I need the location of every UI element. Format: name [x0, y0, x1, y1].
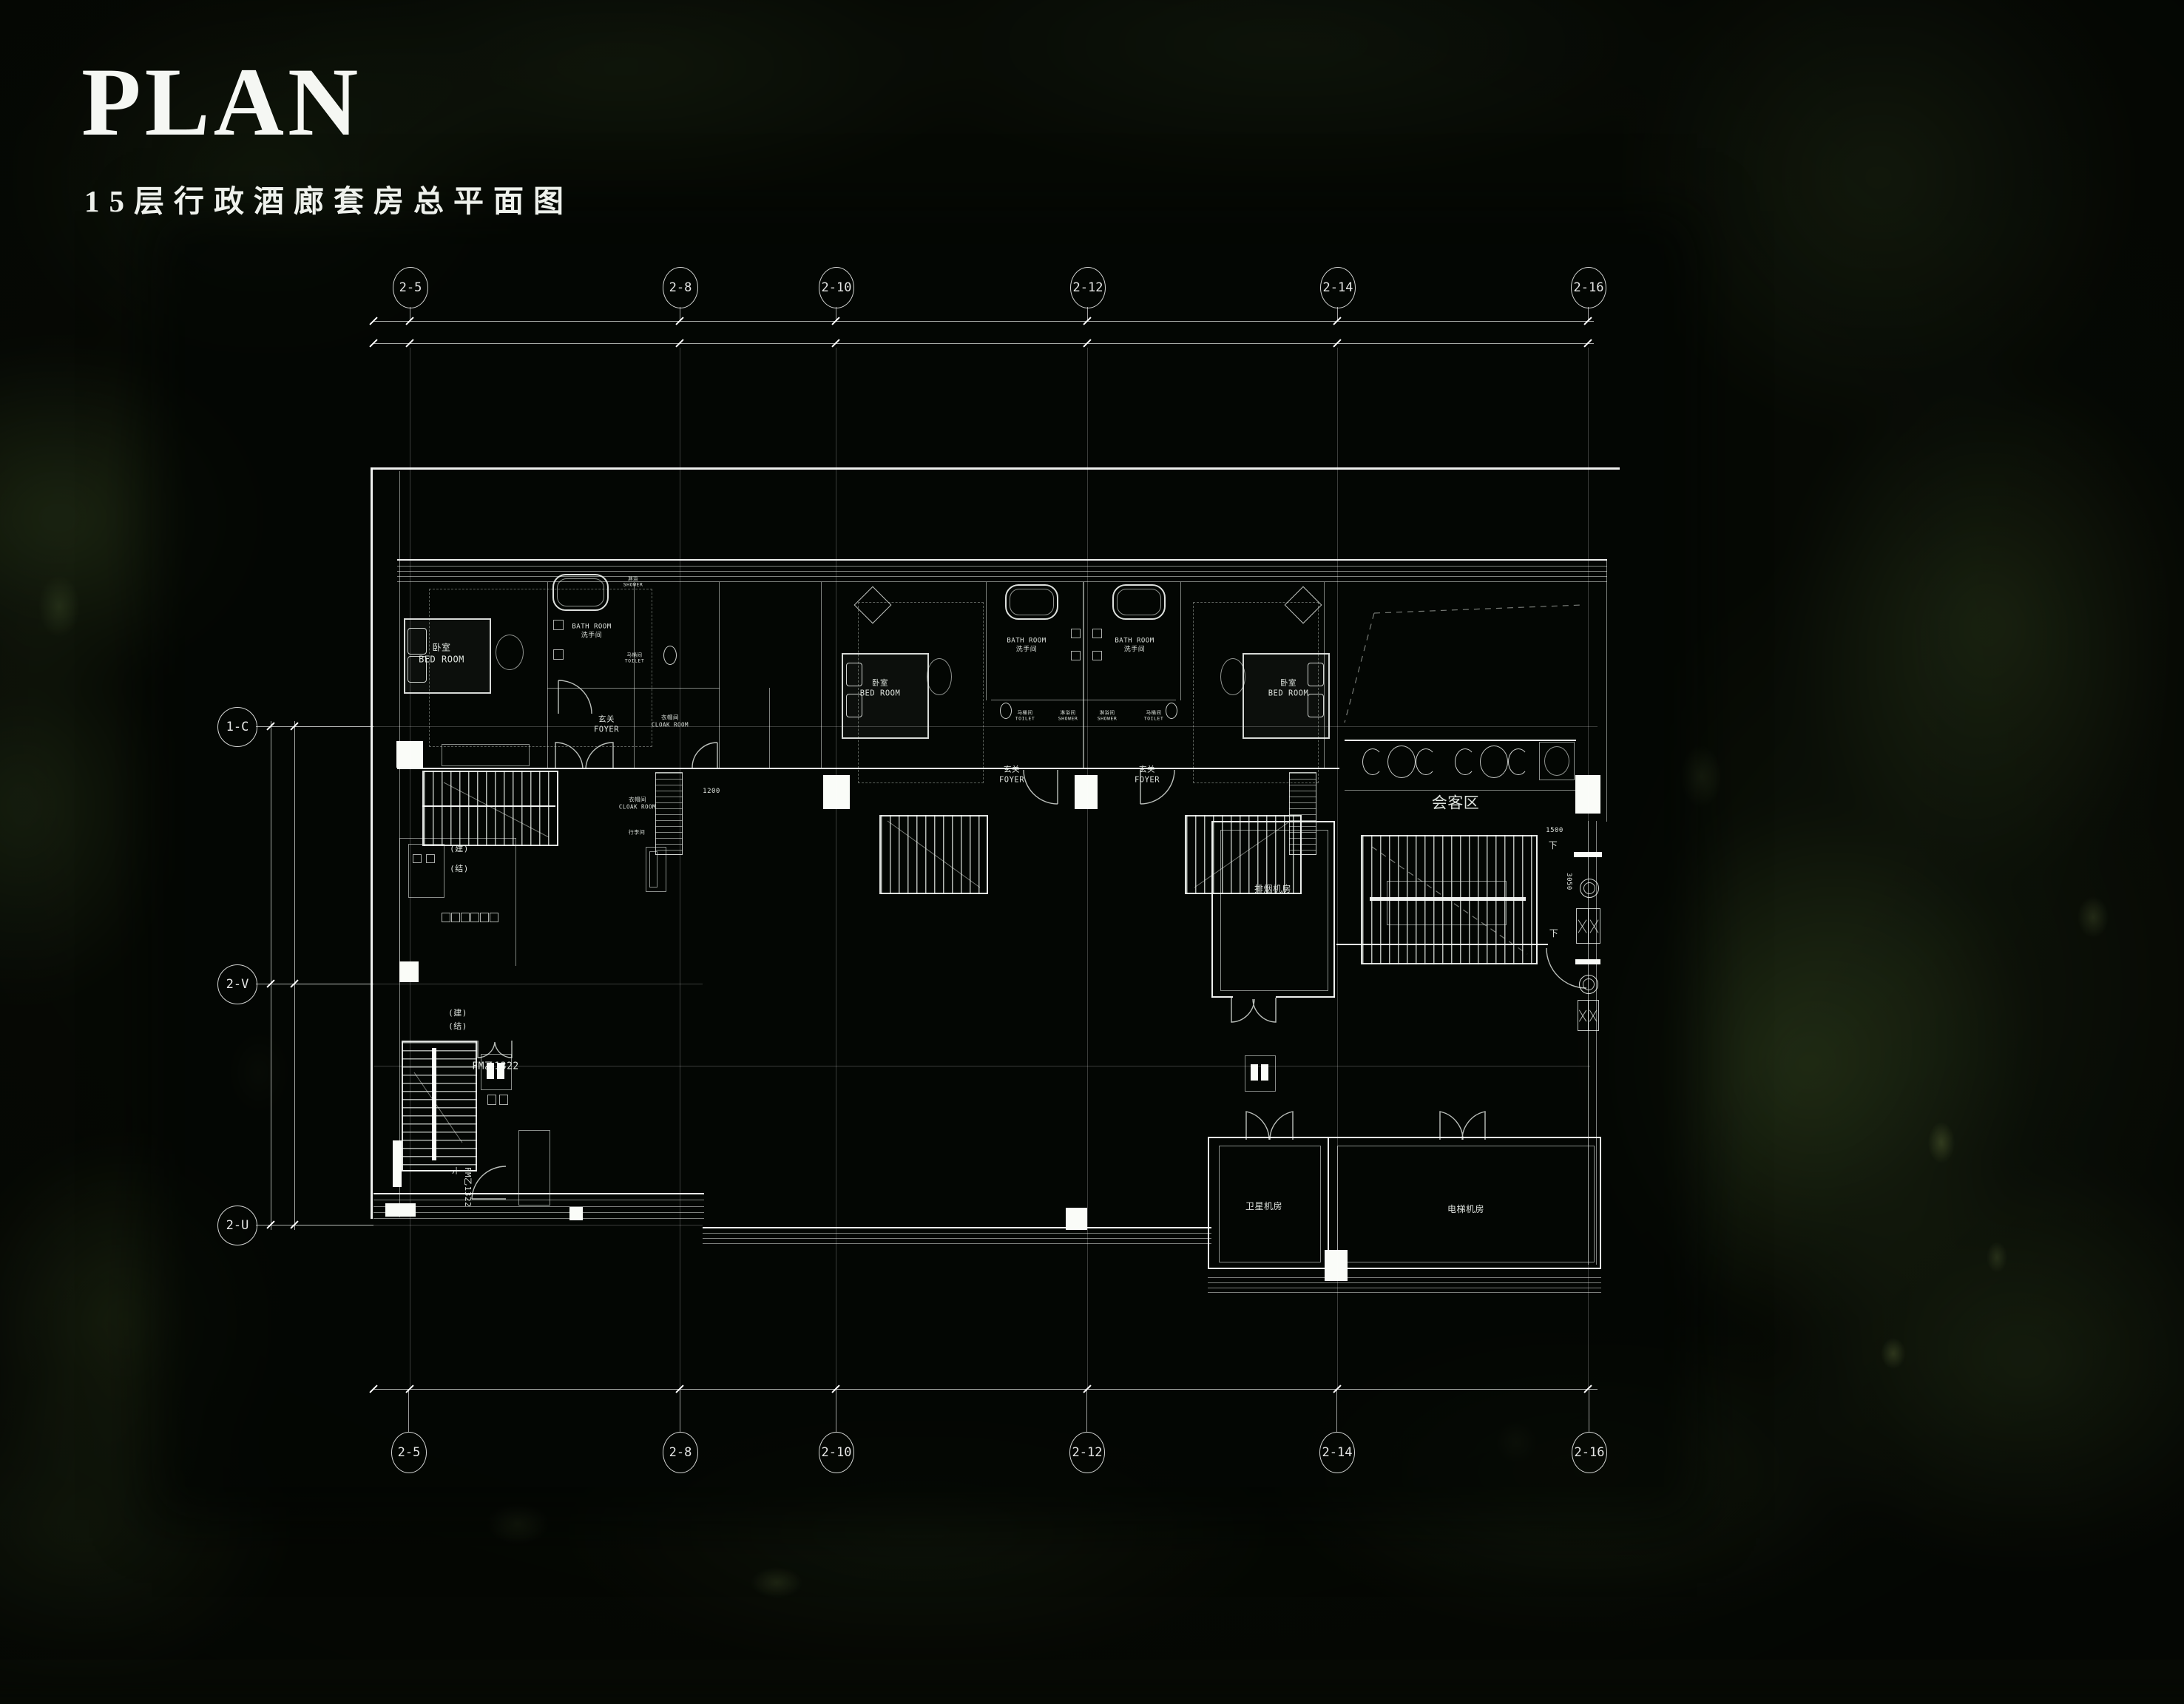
- stair: [402, 1041, 477, 1171]
- grid-axis-line: [294, 1225, 703, 1225]
- grid-axis-line: [410, 348, 410, 1389]
- grid-axis-line: [680, 348, 680, 1389]
- floor-plan-drawing: 2-52-82-102-122-142-162-52-82-102-122-14…: [0, 0, 2184, 1660]
- bath-wall: [991, 700, 1176, 700]
- bathtub: [1005, 584, 1058, 620]
- cad-label: 马桶间 TOILET: [1144, 710, 1163, 723]
- column: [1075, 775, 1098, 809]
- column: [823, 775, 850, 809]
- column: [1325, 1250, 1348, 1281]
- stair-rail: [432, 1048, 436, 1160]
- stair-landing: [1387, 881, 1507, 925]
- boundary-top: [371, 467, 1620, 470]
- service-ladder: [655, 772, 683, 855]
- cad-label: 1500: [1546, 827, 1563, 836]
- cad-label: 电梯机房: [1447, 1204, 1484, 1216]
- column-symbol: [1245, 1055, 1276, 1092]
- hall-room-wall: [515, 838, 516, 966]
- grid-axis-line: [1337, 348, 1338, 1389]
- grid-axis-line: [294, 984, 703, 984]
- closet-cell: [470, 913, 479, 922]
- fixture: [499, 1095, 508, 1105]
- cad-label: (结): [448, 1021, 467, 1032]
- stair-landing-line: [422, 805, 555, 807]
- grid-bubble: 2-U: [217, 1206, 257, 1245]
- bottom-line: [1208, 1282, 1601, 1283]
- sink: [1092, 629, 1102, 638]
- cad-label: 玄关 FOYER: [999, 765, 1024, 785]
- sink: [1092, 651, 1102, 660]
- grid-bubble: 2-10: [819, 1432, 854, 1473]
- cad-label: 卧室 BED ROOM: [860, 678, 901, 698]
- cad-label: FM乙1322: [462, 1167, 473, 1207]
- machine-rooms-top: [1208, 1137, 1601, 1138]
- stair: [422, 771, 558, 846]
- column-fill: [1251, 1064, 1258, 1081]
- bathtub: [1112, 584, 1166, 620]
- grid-axis-line: [1588, 348, 1589, 1389]
- closet: [408, 844, 444, 898]
- closet-cell: [426, 854, 435, 863]
- stair: [879, 815, 988, 894]
- lounge-chair: [1455, 748, 1475, 775]
- machine-rooms-right: [1600, 1137, 1601, 1269]
- band-right-edge: [1606, 560, 1607, 822]
- shaft-x: [1578, 1000, 1589, 1031]
- cad-label: 衣帽间 CLOAK ROOM: [652, 714, 689, 728]
- closet-cell: [461, 913, 470, 922]
- bottom-line: [1208, 1288, 1601, 1288]
- cad-label: 衣帽间 CLOAK ROOM: [619, 796, 656, 811]
- cad-label: 卫星机房: [1245, 1201, 1282, 1213]
- boundary-left: [371, 467, 373, 1219]
- dim-line: [373, 321, 1594, 322]
- lounge-table: [1387, 745, 1416, 778]
- toilet: [1000, 703, 1012, 719]
- exterior-wall: [397, 559, 1607, 561]
- bottom-line: [703, 1243, 1211, 1244]
- window-line: [397, 566, 1607, 567]
- bottom-line: [1208, 1292, 1601, 1293]
- cad-label: 玄关 FOYER: [594, 714, 619, 734]
- grid-bubble: 2-8: [663, 1432, 698, 1473]
- cad-label: 淋浴间 SHOWER: [1098, 710, 1117, 723]
- cad-label: 3050: [1563, 873, 1572, 890]
- bottom-line: [703, 1233, 1211, 1234]
- grid-bubble: 2-14: [1319, 1432, 1355, 1473]
- smoke-room-wall: [1333, 821, 1335, 998]
- grid-stem: [836, 1390, 836, 1432]
- bottom-edge-mid: [703, 1227, 1211, 1228]
- service-ladder: [1289, 772, 1316, 855]
- grid-stem: [1589, 1390, 1589, 1432]
- bottom-line: [703, 1238, 1211, 1239]
- sink: [1071, 651, 1081, 660]
- lounge-wall: [1345, 740, 1576, 741]
- sink: [1071, 629, 1081, 638]
- machine-rooms-left: [1208, 1137, 1209, 1269]
- cad-label: 下: [447, 1166, 458, 1175]
- grid-bubble: 2-16: [1571, 267, 1606, 308]
- grid-bubble: 2-16: [1572, 1432, 1607, 1473]
- cad-label: BATH ROOM 洗手间: [572, 623, 611, 640]
- smoke-room-wall: [1211, 996, 1233, 998]
- column: [1066, 1208, 1087, 1230]
- toilet: [663, 646, 677, 665]
- grid-bubble: 2-12: [1069, 1432, 1105, 1473]
- column-fill: [1261, 1064, 1268, 1081]
- cad-label: (建): [450, 844, 469, 854]
- window-line: [397, 571, 1607, 572]
- cad-label: BATH ROOM 洗手间: [1115, 637, 1154, 654]
- lounge-chair: [1508, 748, 1529, 775]
- closet-cell: [413, 854, 422, 863]
- dim-line: [373, 1389, 1598, 1390]
- closet-cell: [442, 913, 450, 922]
- cad-label: 淋浴间 SHOWER: [1058, 710, 1078, 723]
- bottom-line: [1208, 1277, 1601, 1278]
- closet-cell: [490, 913, 498, 922]
- elevator-symbol: [1579, 975, 1598, 994]
- elevator-symbol: [1580, 879, 1599, 898]
- smoke-room-wall: [1276, 996, 1335, 998]
- wall-block: [399, 961, 419, 982]
- slide: PLAN 15层行政酒廊套房总平面图 2-52-82-102-122-142-1…: [0, 0, 2184, 1660]
- cad-label: 下: [1549, 928, 1559, 940]
- grid-stem: [680, 1390, 680, 1432]
- door-panel: [518, 1130, 550, 1206]
- lounge-chair: [1416, 748, 1436, 775]
- cad-label: 马桶间 TOILET: [1015, 710, 1035, 723]
- grid-bubble: 2-12: [1070, 267, 1106, 308]
- shaft-x: [1576, 908, 1589, 944]
- wall-block: [385, 1203, 416, 1217]
- cad-label: 下: [1549, 840, 1558, 852]
- cad-label: 淋浴 SHOWER: [623, 576, 643, 589]
- cad-label: 卧室 BED ROOM: [1268, 678, 1309, 698]
- partition: [821, 582, 822, 768]
- shaft-x: [1588, 908, 1600, 944]
- grid-axis-line: [294, 726, 1598, 727]
- grid-bubble: 2-5: [391, 1432, 427, 1473]
- machine-rooms-bottom: [1208, 1268, 1601, 1269]
- grid-bubble: 1-C: [217, 707, 257, 747]
- partition: [769, 688, 770, 768]
- grid-stem: [408, 1390, 409, 1432]
- fixture: [487, 1095, 496, 1105]
- lounge-table: [1480, 745, 1508, 778]
- bottom-line: [373, 1212, 704, 1213]
- stair: [1185, 815, 1302, 894]
- hall-room-wall: [399, 838, 400, 966]
- grid-axis-line: [1087, 348, 1088, 1389]
- shaft-x: [1588, 1000, 1599, 1031]
- dim-line: [271, 721, 271, 1230]
- cad-label: 排烟机房: [1254, 884, 1291, 896]
- cad-label: 会客区: [1432, 793, 1480, 813]
- cad-label: (结): [450, 864, 469, 874]
- cad-label: 卧室 BED ROOM: [419, 642, 464, 665]
- partition: [986, 582, 987, 700]
- grid-axis-line: [836, 348, 836, 1389]
- bottom-line: [373, 1218, 704, 1219]
- door-arcs-layer: [0, 0, 2184, 1660]
- cad-label: 马桶间 TOILET: [625, 652, 644, 665]
- cad-label: BATH ROOM 洗手间: [1007, 637, 1046, 654]
- grid-bubble: 2-14: [1320, 267, 1356, 308]
- closet-cell: [451, 913, 460, 922]
- partition: [1180, 582, 1181, 700]
- column: [569, 1207, 583, 1220]
- closet-cell: [480, 913, 489, 922]
- lounge-chair: [1362, 748, 1383, 775]
- shaft-inner: [649, 851, 657, 887]
- toilet: [1166, 703, 1177, 719]
- cad-label: FM乙1322: [472, 1061, 518, 1074]
- grid-stem: [1336, 1390, 1337, 1432]
- partition: [719, 582, 720, 768]
- lounge-line: [1345, 790, 1576, 791]
- cad-label: 行李间: [629, 829, 646, 836]
- dim-line: [294, 721, 295, 1230]
- grid-bubble: 2-5: [393, 267, 428, 308]
- cad-label: 玄关 FOYER: [1135, 765, 1160, 785]
- wall-block: [393, 1140, 402, 1187]
- credenza: [442, 744, 530, 766]
- grid-bubble: 2-10: [819, 267, 854, 308]
- partition: [1083, 582, 1084, 768]
- grid-stem: [1086, 1390, 1087, 1432]
- plant: [1544, 746, 1569, 776]
- bottom-line: [373, 1206, 704, 1207]
- cad-label: 1200: [703, 788, 720, 797]
- dim-line: [373, 343, 1594, 344]
- grid-bubble: 2-8: [663, 267, 698, 308]
- stair-rail: [1370, 897, 1526, 901]
- grid-bubble: 2-V: [217, 964, 257, 1004]
- center-line: [373, 1066, 1590, 1066]
- cad-label: (建): [448, 1008, 467, 1018]
